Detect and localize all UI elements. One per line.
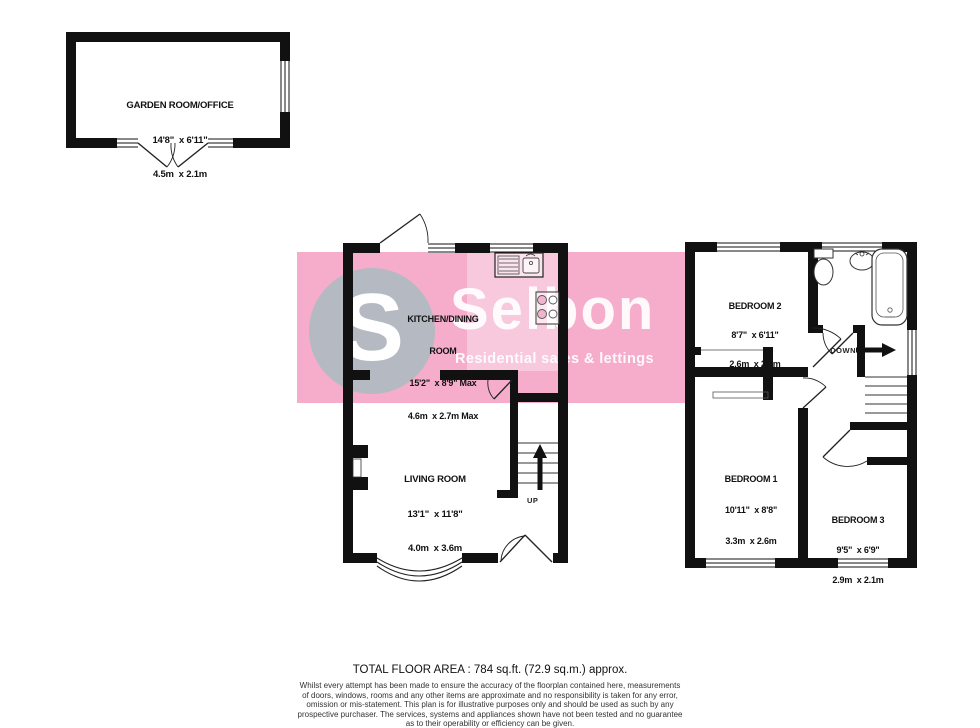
up-label: UP (527, 496, 538, 505)
kitchen-sink-unit (495, 253, 543, 277)
floorplan-canvas: S Selbon Residential sales & lettings (0, 0, 980, 728)
living-room-label: LIVING ROOM 13'1" x 11'8" 4.0m x 3.6m (404, 451, 466, 578)
disclaimer-line-2: of doors, windows, rooms and any other i… (0, 691, 980, 701)
first-floor-plan (680, 230, 925, 575)
bedroom1-door-swing (803, 378, 826, 408)
kitchen-imperial: 15'2" x 8'9" Max (407, 378, 478, 389)
bedroom3-name: BEDROOM 3 (832, 515, 885, 525)
toilet (814, 249, 833, 285)
bedroom2-label: BEDROOM 2 8'7" x 6'11" 2.6m x 2.1m (729, 283, 782, 389)
disclaimer-line-4: prospective purchaser. The services, sys… (0, 710, 980, 720)
bedroom3-imperial: 9'5" x 6'9" (832, 545, 885, 555)
bathtub (872, 249, 907, 325)
garden-room-name: GARDEN ROOM/OFFICE (126, 100, 233, 112)
basin (850, 252, 874, 270)
kitchen-door-swing (488, 380, 512, 399)
garden-room-label: GARDEN ROOM/OFFICE 14'8" x 6'11" 4.5m x … (126, 77, 233, 204)
living-room-metric: 4.0m x 3.6m (404, 543, 466, 555)
total-floor-area: TOTAL FLOOR AREA : 784 sq.ft. (72.9 sq.m… (0, 664, 980, 676)
staircase-down (865, 377, 907, 413)
kitchen-metric: 4.6m x 2.7m Max (407, 411, 478, 422)
bedroom1-label: BEDROOM 1 10'11" x 8'8" 3.3m x 2.6m (725, 453, 778, 567)
living-room-name: LIVING ROOM (404, 474, 466, 486)
disclaimer: Whilst every attempt has been made to en… (0, 681, 980, 728)
garden-room-metric: 4.5m x 2.1m (126, 169, 233, 181)
kitchen-name-line2: ROOM (407, 346, 478, 357)
bedroom3-label: BEDROOM 3 9'5" x 6'9" 2.9m x 2.1m (832, 495, 885, 605)
down-label: DOWN (820, 346, 856, 355)
living-room-imperial: 13'1" x 11'8" (404, 509, 466, 521)
bedroom1-metric: 3.3m x 2.6m (725, 536, 778, 546)
bedroom2-metric: 2.6m x 2.1m (729, 360, 782, 370)
bedroom3-metric: 2.9m x 2.1m (832, 575, 885, 585)
disclaimer-line-5: as to their operability or efficiency ca… (0, 719, 980, 728)
chimney-breast (353, 445, 368, 490)
bedroom2-imperial: 8'7" x 6'11" (729, 331, 782, 341)
bedroom3-door-swing (823, 430, 867, 466)
kitchen-name-line1: KITCHEN/DINING (407, 314, 478, 325)
bedroom1-name: BEDROOM 1 (725, 474, 778, 484)
front-door-swing (500, 535, 552, 562)
hob (536, 292, 559, 324)
back-door-swing (380, 214, 428, 243)
garden-room-imperial: 14'8" x 6'11" (126, 135, 233, 147)
bedroom1-imperial: 10'11" x 8'8" (725, 505, 778, 515)
disclaimer-line-1: Whilst every attempt has been made to en… (0, 681, 980, 691)
bedroom2-name: BEDROOM 2 (729, 302, 782, 312)
disclaimer-line-3: omission or mis-statement. This plan is … (0, 700, 980, 710)
kitchen-label: KITCHEN/DINING ROOM 15'2" x 8'9" Max 4.6… (407, 292, 478, 443)
